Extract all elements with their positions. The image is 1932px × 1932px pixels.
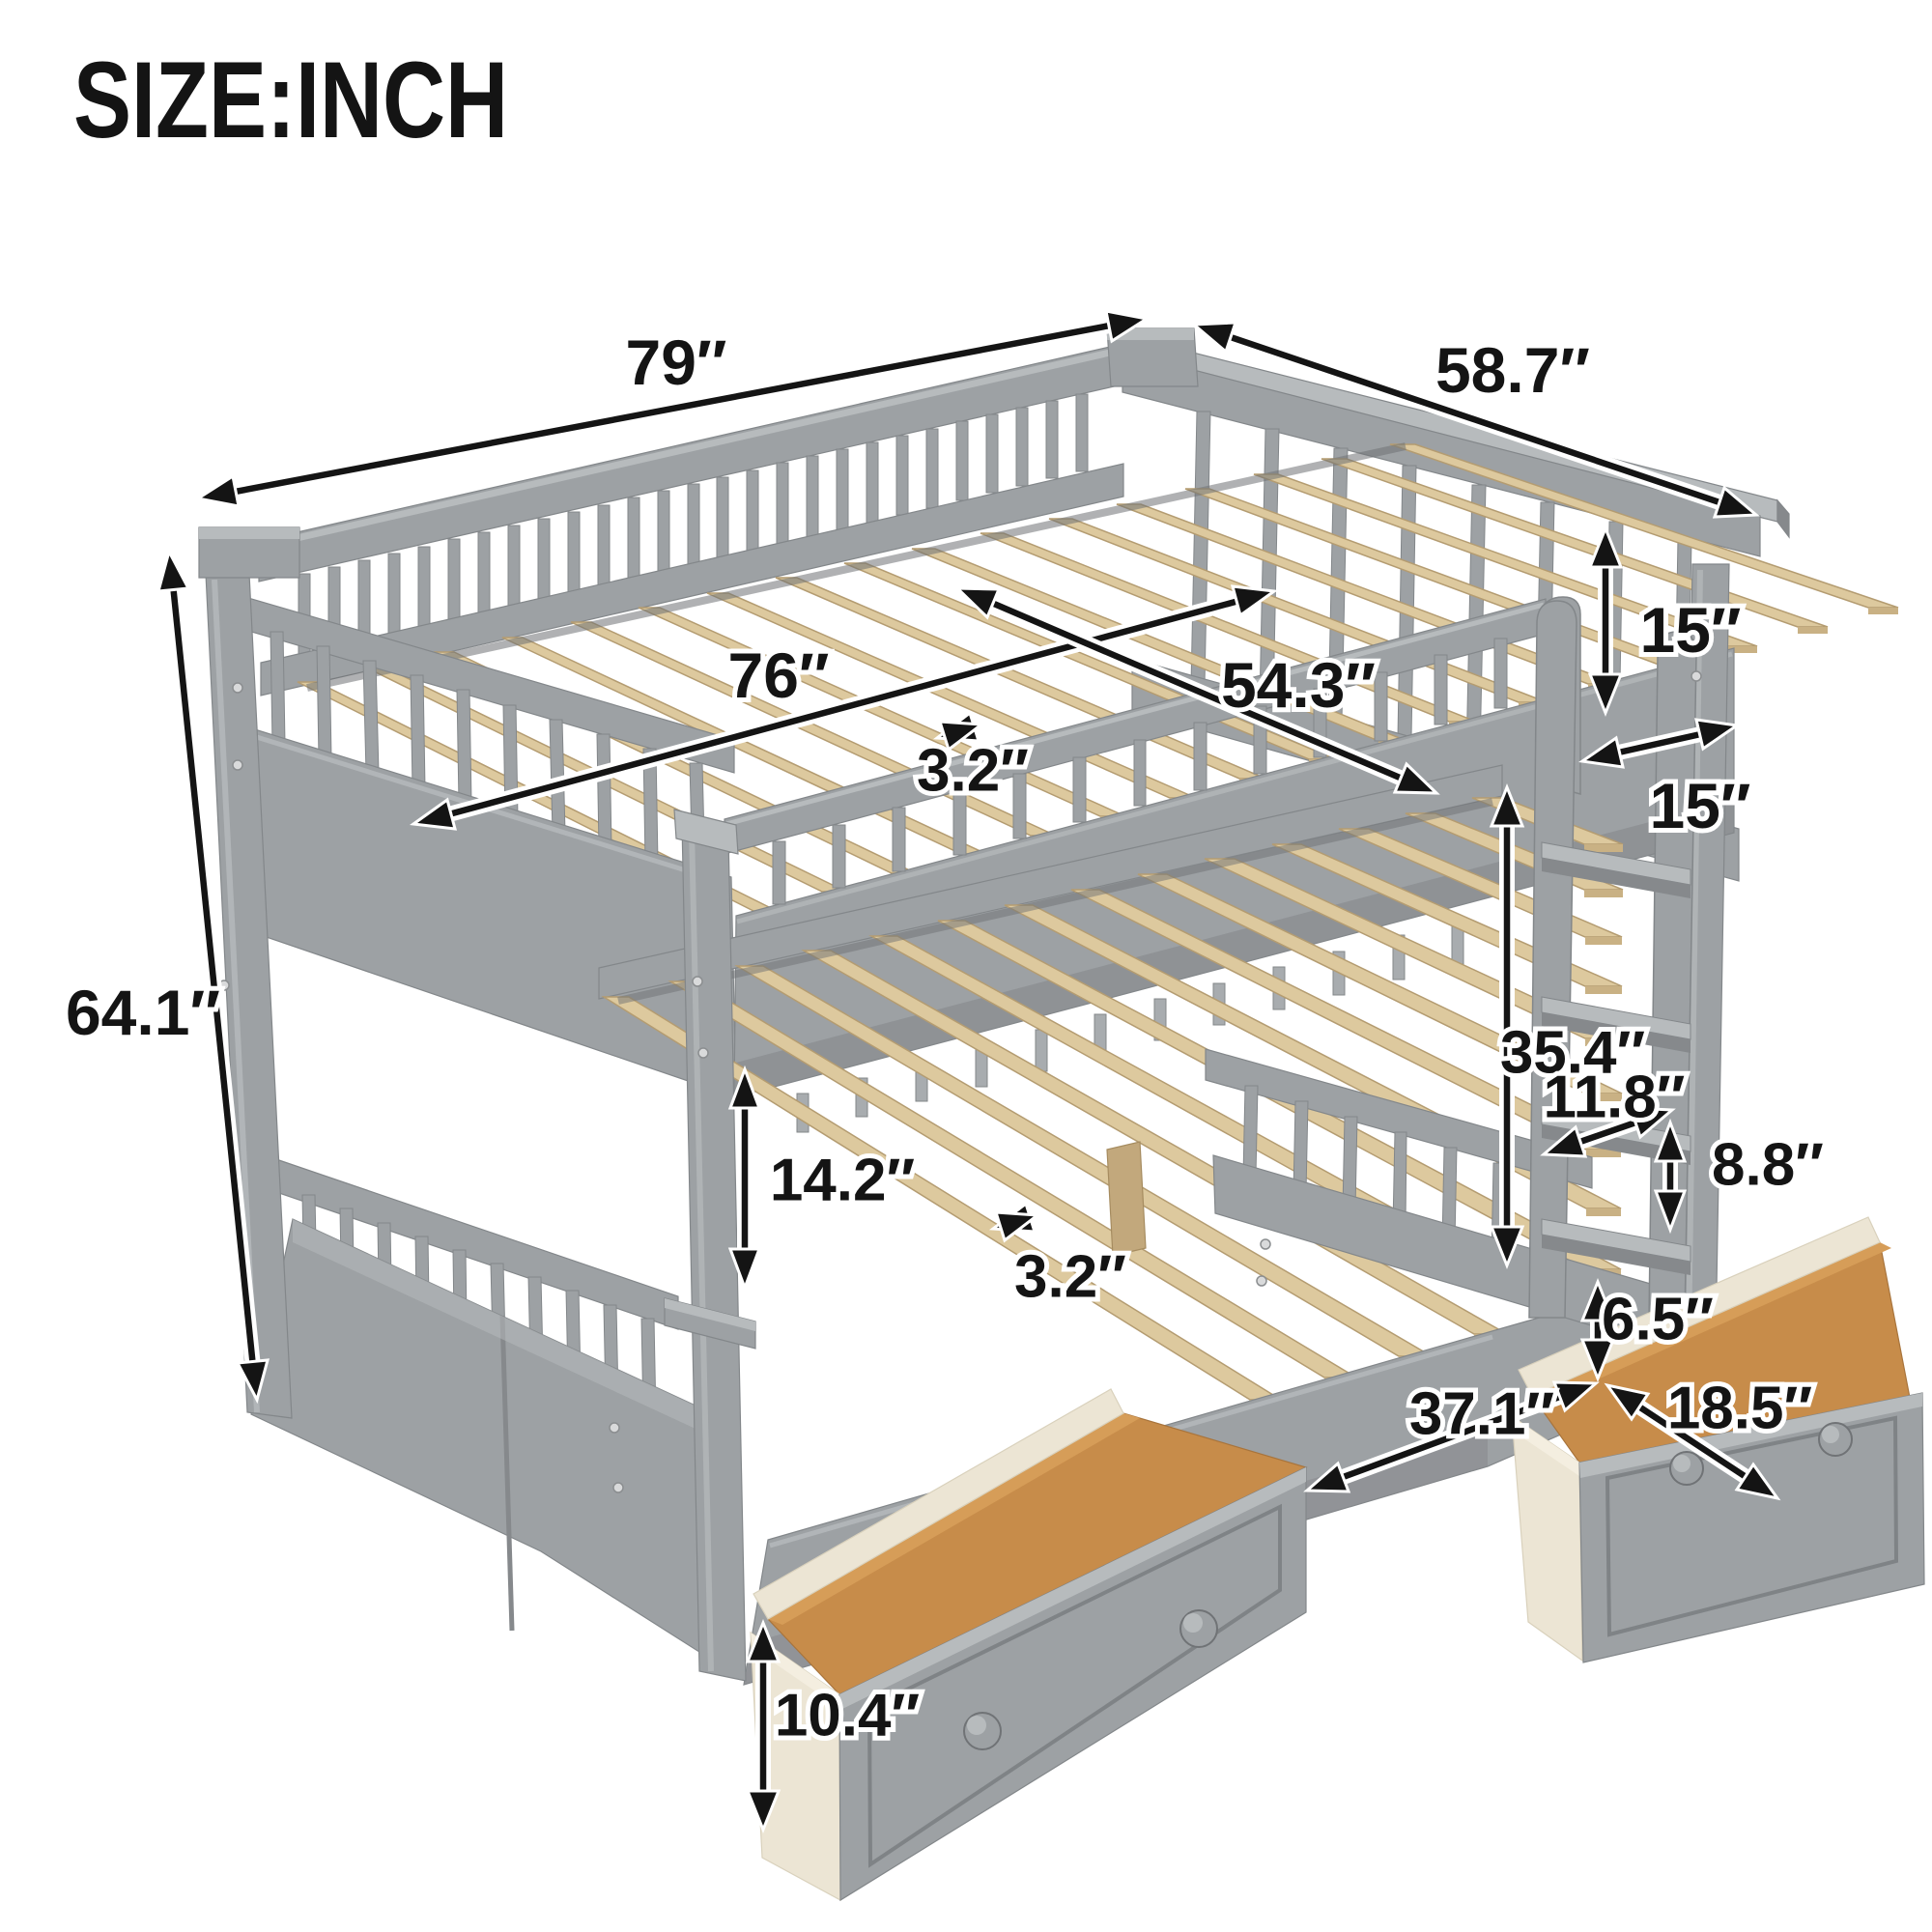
svg-text:10.4″: 10.4″ <box>775 1683 920 1749</box>
svg-text:54.3″: 54.3″ <box>1221 649 1376 721</box>
svg-text:3.2″: 3.2″ <box>1014 1244 1126 1311</box>
svg-text:58.7″: 58.7″ <box>1435 334 1590 406</box>
svg-text:37.1″: 37.1″ <box>1409 1381 1554 1448</box>
svg-text:79″: 79″ <box>625 327 726 398</box>
svg-text:15″: 15″ <box>1649 770 1750 841</box>
svg-text:14.2″: 14.2″ <box>770 1148 915 1214</box>
svg-text:11.8″: 11.8″ <box>1544 1065 1686 1131</box>
svg-text:64.1″: 64.1″ <box>66 977 220 1048</box>
svg-text:6.5″: 6.5″ <box>1602 1287 1714 1353</box>
svg-text:18.5″: 18.5″ <box>1667 1376 1812 1442</box>
svg-text:8.8″: 8.8″ <box>1712 1132 1824 1199</box>
svg-text:76″: 76″ <box>727 639 829 711</box>
svg-text:SIZE:INCH: SIZE:INCH <box>73 40 508 160</box>
svg-text:3.2″: 3.2″ <box>917 738 1029 805</box>
svg-text:15″: 15″ <box>1639 594 1741 666</box>
